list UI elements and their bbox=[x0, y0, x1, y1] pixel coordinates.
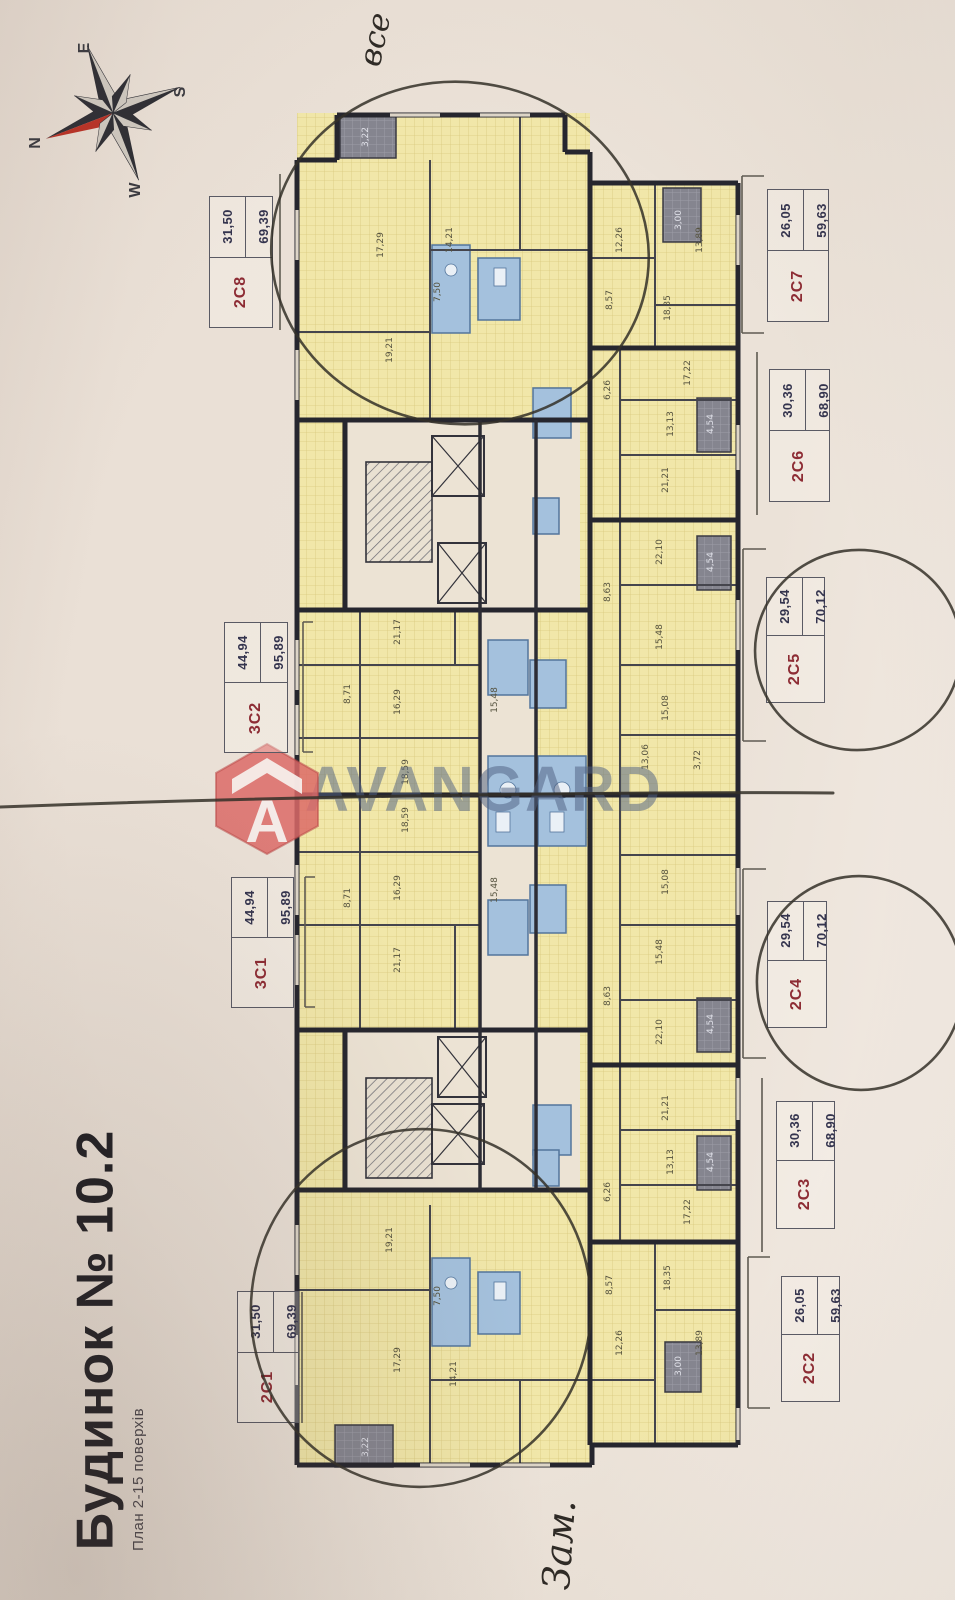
pen-circle-unit-2c8 bbox=[252, 60, 669, 446]
pen-horizontal-line bbox=[0, 793, 833, 807]
pen-circle-unit-2c5 bbox=[742, 537, 955, 764]
pen-circle-unit-2c4 bbox=[743, 863, 955, 1104]
pen-circle-unit-2c1 bbox=[233, 1112, 609, 1504]
pen-annotations bbox=[0, 0, 955, 1600]
floor-plan-photo: { "titleblock": { "title": "Будинок № 10… bbox=[0, 0, 955, 1600]
handwriting-bottom: Зам. bbox=[534, 1498, 584, 1591]
